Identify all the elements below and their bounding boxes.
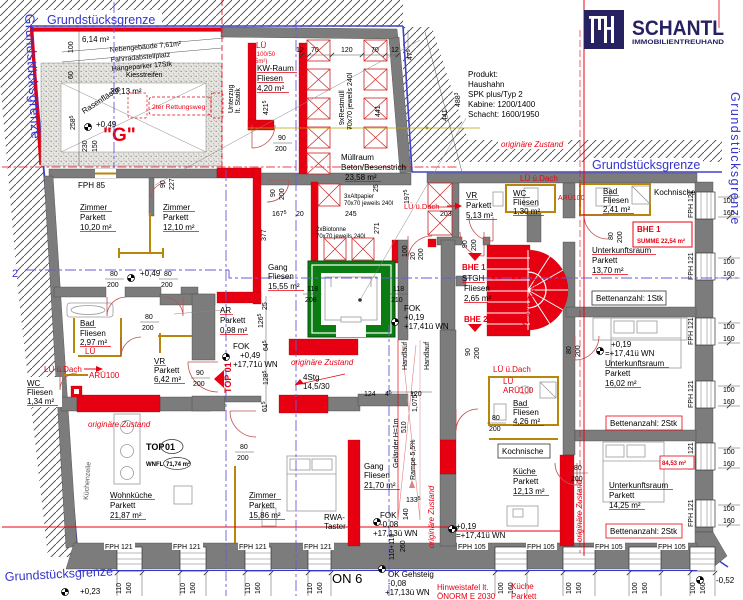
svg-text:=+17,41ü WN: =+17,41ü WN <box>605 349 655 358</box>
svg-text:160: 160 <box>723 336 735 343</box>
svg-text:70x70 jeweils 240l: 70x70 jeweils 240l <box>344 201 393 207</box>
svg-text:4,26 m²: 4,26 m² <box>513 417 540 426</box>
svg-text:FOK: FOK <box>380 511 397 520</box>
svg-text:SCHANTL: SCHANTL <box>632 17 724 40</box>
svg-text:FPH 85: FPH 85 <box>78 181 106 190</box>
svg-text:Fliesen: Fliesen <box>513 408 539 417</box>
svg-text:25: 25 <box>373 184 380 192</box>
svg-text:Parkett: Parkett <box>154 366 180 375</box>
svg-text:RWA-: RWA- <box>324 513 345 522</box>
svg-text:Produkt:: Produkt: <box>468 70 498 79</box>
svg-text:FOK: FOK <box>404 304 421 313</box>
svg-text:OK Gehsteig: OK Gehsteig <box>388 570 434 579</box>
svg-text:118: 118 <box>307 286 318 293</box>
svg-text:100: 100 <box>566 582 573 594</box>
svg-text:Fliesen: Fliesen <box>80 329 106 338</box>
svg-text:Bad: Bad <box>80 319 94 328</box>
svg-text:Kabine: 1200/1400: Kabine: 1200/1400 <box>468 100 536 109</box>
svg-text:80: 80 <box>164 271 172 278</box>
svg-text:21,87 m²: 21,87 m² <box>110 511 142 520</box>
svg-text:90: 90 <box>196 370 204 377</box>
svg-text:Müllraum: Müllraum <box>341 153 374 162</box>
svg-text:ARÜ100: ARÜ100 <box>558 194 585 202</box>
svg-text:Bettenanzahl: 2Stk: Bettenanzahl: 2Stk <box>610 419 678 428</box>
svg-text:90: 90 <box>462 240 469 248</box>
svg-text:110: 110 <box>245 583 252 594</box>
svg-text:SUMME 22,54 m²: SUMME 22,54 m² <box>637 238 685 245</box>
svg-text:Taster: Taster <box>324 522 346 531</box>
svg-text:Parkett: Parkett <box>466 201 492 210</box>
svg-text:FPH 121: FPH 121 <box>304 544 332 551</box>
svg-text:Wohnküche: Wohnküche <box>110 491 153 500</box>
svg-text:Grundstücksgrenze: Grundstücksgrenze <box>47 13 155 27</box>
svg-text:FPH 121: FPH 121 <box>688 252 695 280</box>
svg-text:WC: WC <box>27 379 41 388</box>
svg-text:ARÜ100: ARÜ100 <box>503 386 534 395</box>
svg-text:80: 80 <box>145 314 153 321</box>
svg-text:ARÜ100: ARÜ100 <box>89 371 120 380</box>
svg-text:200: 200 <box>193 381 205 388</box>
svg-text:Fliesen: Fliesen <box>464 284 490 293</box>
svg-text:10,20 m²: 10,20 m² <box>80 223 112 232</box>
svg-text:160: 160 <box>642 582 649 594</box>
svg-text:Handlauf: Handlauf <box>402 342 409 370</box>
svg-text:+0,19: +0,19 <box>611 340 632 349</box>
svg-text:260: 260 <box>400 540 407 552</box>
svg-text:Handlauf: Handlauf <box>424 342 431 370</box>
svg-text:150: 150 <box>92 140 99 152</box>
svg-text:FPH 105: FPH 105 <box>595 544 623 551</box>
svg-text:FPH 105: FPH 105 <box>658 544 686 551</box>
svg-text:200: 200 <box>142 325 154 332</box>
svg-text:lt. Statik: lt. Statik <box>235 88 242 113</box>
svg-text:Rampe 5,5%: Rampe 5,5% <box>410 440 417 480</box>
svg-text:1,0755: 1,0755 <box>411 391 419 412</box>
svg-text:203: 203 <box>440 211 452 218</box>
svg-text:160: 160 <box>576 582 583 594</box>
svg-text:100: 100 <box>723 506 735 513</box>
svg-text:IMMOBILIENTREUHAND: IMMOBILIENTREUHAND <box>632 39 725 46</box>
svg-text:Hinweistafel lt.: Hinweistafel lt. <box>437 583 489 592</box>
svg-text:AL 100/50: AL 100/50 <box>248 52 276 58</box>
svg-text:ON 6: ON 6 <box>332 571 362 586</box>
svg-text:+0,49: +0,49 <box>140 269 161 278</box>
svg-text:+0,19: +0,19 <box>456 522 477 531</box>
svg-text:71,74 m²: 71,74 m² <box>166 461 190 468</box>
svg-text:originäre Zustand: originäre Zustand <box>291 358 354 367</box>
svg-text:100: 100 <box>690 582 697 594</box>
svg-text:originäre Zustand: originäre Zustand <box>427 485 436 548</box>
svg-text:23,58 m²: 23,58 m² <box>345 173 377 182</box>
svg-text:FPH 121: FPH 121 <box>105 544 133 551</box>
svg-text:Parkett: Parkett <box>80 213 106 222</box>
svg-text:12: 12 <box>296 47 304 54</box>
svg-text:21,70 m²: 21,70 m² <box>364 481 396 490</box>
svg-text:LÜ ü.Dach: LÜ ü.Dach <box>44 365 82 374</box>
svg-text:Beton/Besenstrich: Beton/Besenstrich <box>341 163 406 172</box>
svg-text:200: 200 <box>161 282 173 289</box>
svg-text:Kiesstreifen: Kiesstreifen <box>126 72 163 79</box>
svg-text:Unterkunftsraum: Unterkunftsraum <box>609 481 668 490</box>
svg-text:2: 2 <box>12 268 18 280</box>
svg-text:BHE 2: BHE 2 <box>464 315 488 324</box>
svg-text:=+17,41ü WN: =+17,41ü WN <box>456 531 506 540</box>
svg-text:160: 160 <box>126 582 133 594</box>
svg-text:2ter Rettungsweg: 2ter Rettungsweg <box>152 104 205 111</box>
svg-text:60: 60 <box>68 71 75 79</box>
svg-text:LÜ: LÜ <box>503 377 513 386</box>
svg-text:originäre Zustand: originäre Zustand <box>88 420 151 429</box>
svg-text:200: 200 <box>575 345 582 357</box>
svg-text:WNFL: WNFL <box>146 462 164 468</box>
svg-text:TOP 01: TOP 01 <box>223 362 233 393</box>
svg-text:Grundstücksgrenze: Grundstücksgrenze <box>728 92 742 226</box>
svg-text:Parkett: Parkett <box>511 592 537 600</box>
svg-text:Bettenanzahl: 1Stk: Bettenanzahl: 1Stk <box>596 294 664 303</box>
svg-text:15,55 m²: 15,55 m² <box>268 282 300 291</box>
svg-text:227: 227 <box>169 178 176 190</box>
svg-text:SPK plus/Typ 2: SPK plus/Typ 2 <box>468 90 523 99</box>
svg-text:Zimmer: Zimmer <box>80 203 107 212</box>
svg-text:100: 100 <box>723 387 735 394</box>
svg-text:160: 160 <box>190 582 197 594</box>
svg-text:160: 160 <box>723 399 735 406</box>
svg-text:160: 160 <box>700 582 707 594</box>
svg-text:Fliesen: Fliesen <box>603 196 629 205</box>
svg-text:Parkett: Parkett <box>605 369 631 378</box>
svg-text:70x70 jeweils 240l: 70x70 jeweils 240l <box>347 72 354 130</box>
svg-text:AR: AR <box>220 306 231 315</box>
svg-text:9xRestmüll: 9xRestmüll <box>339 90 346 125</box>
svg-text:15,86 m²: 15,86 m² <box>249 511 281 520</box>
svg-text:100: 100 <box>723 259 735 266</box>
svg-text:Parkett: Parkett <box>249 501 275 510</box>
svg-text:-0,08: -0,08 <box>388 579 407 588</box>
svg-text:Zimmer: Zimmer <box>163 203 190 212</box>
svg-text:Fliesen: Fliesen <box>364 471 390 480</box>
svg-text:12,13 m²: 12,13 m² <box>513 487 545 496</box>
svg-text:5,13 m²: 5,13 m² <box>466 211 493 220</box>
svg-text:-0,08: -0,08 <box>380 520 399 529</box>
svg-text:VR: VR <box>154 357 165 366</box>
svg-text:2,97 m²: 2,97 m² <box>80 338 107 347</box>
svg-text:ÖNORM E 2030: ÖNORM E 2030 <box>437 592 496 600</box>
svg-text:"G": "G" <box>103 125 136 146</box>
svg-text:377: 377 <box>261 229 268 241</box>
svg-text:271: 271 <box>374 222 381 234</box>
svg-text:70: 70 <box>371 47 379 54</box>
svg-text:Parkett: Parkett <box>513 477 539 486</box>
svg-text:Kochnische: Kochnische <box>654 188 696 197</box>
svg-text:Unterkunftsraum: Unterkunftsraum <box>592 246 651 255</box>
svg-text:200: 200 <box>418 248 425 260</box>
svg-text:14,25 m²: 14,25 m² <box>609 501 641 510</box>
svg-text:Unterzug: Unterzug <box>228 84 235 113</box>
svg-text:Fliesen: Fliesen <box>513 198 539 207</box>
svg-text:LÜ ü.Dach: LÜ ü.Dach <box>520 174 558 183</box>
svg-text:200: 200 <box>275 146 287 153</box>
svg-text:25: 25 <box>262 302 269 310</box>
svg-text:+17,71ü WN: +17,71ü WN <box>233 360 278 369</box>
svg-text:441: 441 <box>375 105 382 117</box>
svg-text:200: 200 <box>471 239 478 251</box>
svg-text:Fliesen: Fliesen <box>257 74 283 83</box>
svg-text:160: 160 <box>723 271 735 278</box>
svg-text:80: 80 <box>240 444 248 451</box>
svg-text:4,20 m²: 4,20 m² <box>257 84 284 93</box>
svg-text:VR: VR <box>466 191 477 200</box>
svg-text:Küche: Küche <box>513 467 536 476</box>
svg-text:510: 510 <box>401 421 408 433</box>
svg-text:FPH 121: FPH 121 <box>688 317 695 345</box>
svg-text:200: 200 <box>107 282 119 289</box>
svg-text:12: 12 <box>391 47 399 54</box>
svg-text:+0,23: +0,23 <box>80 587 101 596</box>
svg-text:+0,49: +0,49 <box>240 351 261 360</box>
svg-text:2,65 m²: 2,65 m² <box>464 294 491 303</box>
svg-text:originäre Zustand: originäre Zustand <box>501 140 564 149</box>
svg-text:FPH 121: FPH 121 <box>173 544 201 551</box>
svg-text:Parkett: Parkett <box>609 491 635 500</box>
svg-text:Fliesen: Fliesen <box>27 388 53 397</box>
svg-text:160: 160 <box>317 582 324 594</box>
svg-text:110: 110 <box>180 583 187 594</box>
svg-text:124: 124 <box>364 391 376 398</box>
svg-text:200: 200 <box>279 188 286 200</box>
svg-text:1,34 m²: 1,34 m² <box>27 397 54 406</box>
svg-text:1,30 m²: 1,30 m² <box>513 207 540 216</box>
svg-text:118: 118 <box>393 286 404 293</box>
svg-text:LÜ ü.Dach: LÜ ü.Dach <box>493 365 531 374</box>
svg-text:100: 100 <box>402 245 409 257</box>
svg-text:FPH 105: FPH 105 <box>527 544 555 551</box>
svg-text:160: 160 <box>255 582 262 594</box>
svg-text:KW-Raum: KW-Raum <box>257 64 294 73</box>
svg-text:90: 90 <box>465 348 472 356</box>
svg-text:Parkett: Parkett <box>163 213 189 222</box>
svg-text:70x70 jeweils 240l: 70x70 jeweils 240l <box>316 234 365 240</box>
svg-text:+0,19: +0,19 <box>404 313 425 322</box>
svg-text:208: 208 <box>305 297 317 304</box>
svg-text:BHE 1: BHE 1 <box>462 263 486 272</box>
svg-text:100: 100 <box>68 41 75 53</box>
svg-text:Gang: Gang <box>364 462 384 471</box>
svg-text:12,10 m²: 12,10 m² <box>163 223 195 232</box>
svg-text:2xBiotonne: 2xBiotonne <box>316 227 347 233</box>
svg-text:200: 200 <box>571 476 583 483</box>
svg-text:Haushahn: Haushahn <box>468 80 504 89</box>
svg-text:01: 01 <box>165 442 175 452</box>
svg-text:FOK: FOK <box>233 342 250 351</box>
svg-text:120: 120 <box>341 47 353 54</box>
svg-text:BHE 1: BHE 1 <box>637 225 661 234</box>
svg-text:20: 20 <box>410 252 417 260</box>
svg-text:LÜ: LÜ <box>256 41 266 50</box>
svg-text:Gang: Gang <box>268 263 288 272</box>
svg-text:Parkett: Parkett <box>220 316 246 325</box>
svg-text:160: 160 <box>723 518 735 525</box>
svg-text:100: 100 <box>723 449 735 456</box>
svg-text:110+110: 110+110 <box>389 533 396 560</box>
svg-text:0,98 m²: 0,98 m² <box>220 326 247 335</box>
svg-text:13,70 m²: 13,70 m² <box>592 266 624 275</box>
svg-text:200: 200 <box>617 231 624 243</box>
svg-text:100: 100 <box>723 324 735 331</box>
svg-text:Bad: Bad <box>513 399 527 408</box>
svg-text:Fliesen: Fliesen <box>268 272 294 281</box>
svg-text:FPH 121: FPH 121 <box>688 380 695 408</box>
svg-text:90: 90 <box>278 135 286 142</box>
svg-text:Küche: Küche <box>511 582 534 591</box>
svg-text:100: 100 <box>498 582 505 594</box>
svg-text:80: 80 <box>492 415 500 422</box>
svg-text:Kochnische: Kochnische <box>502 447 544 456</box>
svg-text:Bettenanzahl: 2Stk: Bettenanzahl: 2Stk <box>610 527 678 536</box>
svg-text:6,14 m²: 6,14 m² <box>82 35 109 44</box>
svg-text:200: 200 <box>237 455 249 462</box>
svg-text:Grundstücksgrenze: Grundstücksgrenze <box>592 158 700 172</box>
svg-text:Zimmer: Zimmer <box>249 491 276 500</box>
svg-text:6,42 m²: 6,42 m² <box>154 375 181 384</box>
svg-text:140: 140 <box>403 508 410 520</box>
svg-text:20: 20 <box>296 211 304 218</box>
svg-text:14,5/30: 14,5/30 <box>303 382 330 391</box>
svg-text:+17,41ü WN: +17,41ü WN <box>404 322 449 331</box>
svg-text:2,41 m²: 2,41 m² <box>603 205 630 214</box>
svg-text:FPH 121: FPH 121 <box>688 499 695 527</box>
svg-text:200: 200 <box>489 426 501 433</box>
svg-text:80: 80 <box>110 271 118 278</box>
svg-text:4Stg: 4Stg <box>303 373 319 382</box>
svg-text:Parkett: Parkett <box>592 256 618 265</box>
svg-text:WC: WC <box>513 189 527 198</box>
svg-text:16,02 m²: 16,02 m² <box>605 379 637 388</box>
svg-text:+17,13ü WN: +17,13ü WN <box>385 588 430 597</box>
svg-text:3xAltpapier: 3xAltpapier <box>344 194 374 200</box>
svg-text:LÜ: LÜ <box>85 347 95 356</box>
svg-text:Bad: Bad <box>603 187 617 196</box>
svg-text:100: 100 <box>632 582 639 594</box>
svg-text:Schacht: 1600/1950: Schacht: 1600/1950 <box>468 110 540 119</box>
svg-text:FPH 105: FPH 105 <box>458 544 486 551</box>
svg-text:80: 80 <box>608 232 615 240</box>
svg-text:210: 210 <box>391 297 403 304</box>
svg-text:230: 230 <box>82 140 89 152</box>
svg-text:-0,52: -0,52 <box>716 576 735 585</box>
svg-text:80: 80 <box>566 346 573 354</box>
svg-text:245: 245 <box>345 211 357 218</box>
svg-text:84,53 m²: 84,53 m² <box>662 460 686 467</box>
svg-text:Geländer H=1m: Geländer H=1m <box>393 418 400 468</box>
svg-text:STGH: STGH <box>462 274 484 283</box>
svg-text:90: 90 <box>160 180 167 188</box>
svg-text:FPH 121: FPH 121 <box>239 544 267 551</box>
svg-text:90: 90 <box>270 189 277 197</box>
svg-text:160: 160 <box>723 461 735 468</box>
svg-text:Parkett: Parkett <box>110 501 136 510</box>
svg-text:70: 70 <box>311 47 319 54</box>
svg-text:Unterkunftsraum: Unterkunftsraum <box>605 359 664 368</box>
svg-text:originäre Zustand: originäre Zustand <box>575 479 584 542</box>
svg-text:200: 200 <box>474 347 481 359</box>
svg-text:441: 441 <box>442 109 449 121</box>
svg-text:80: 80 <box>574 465 582 472</box>
